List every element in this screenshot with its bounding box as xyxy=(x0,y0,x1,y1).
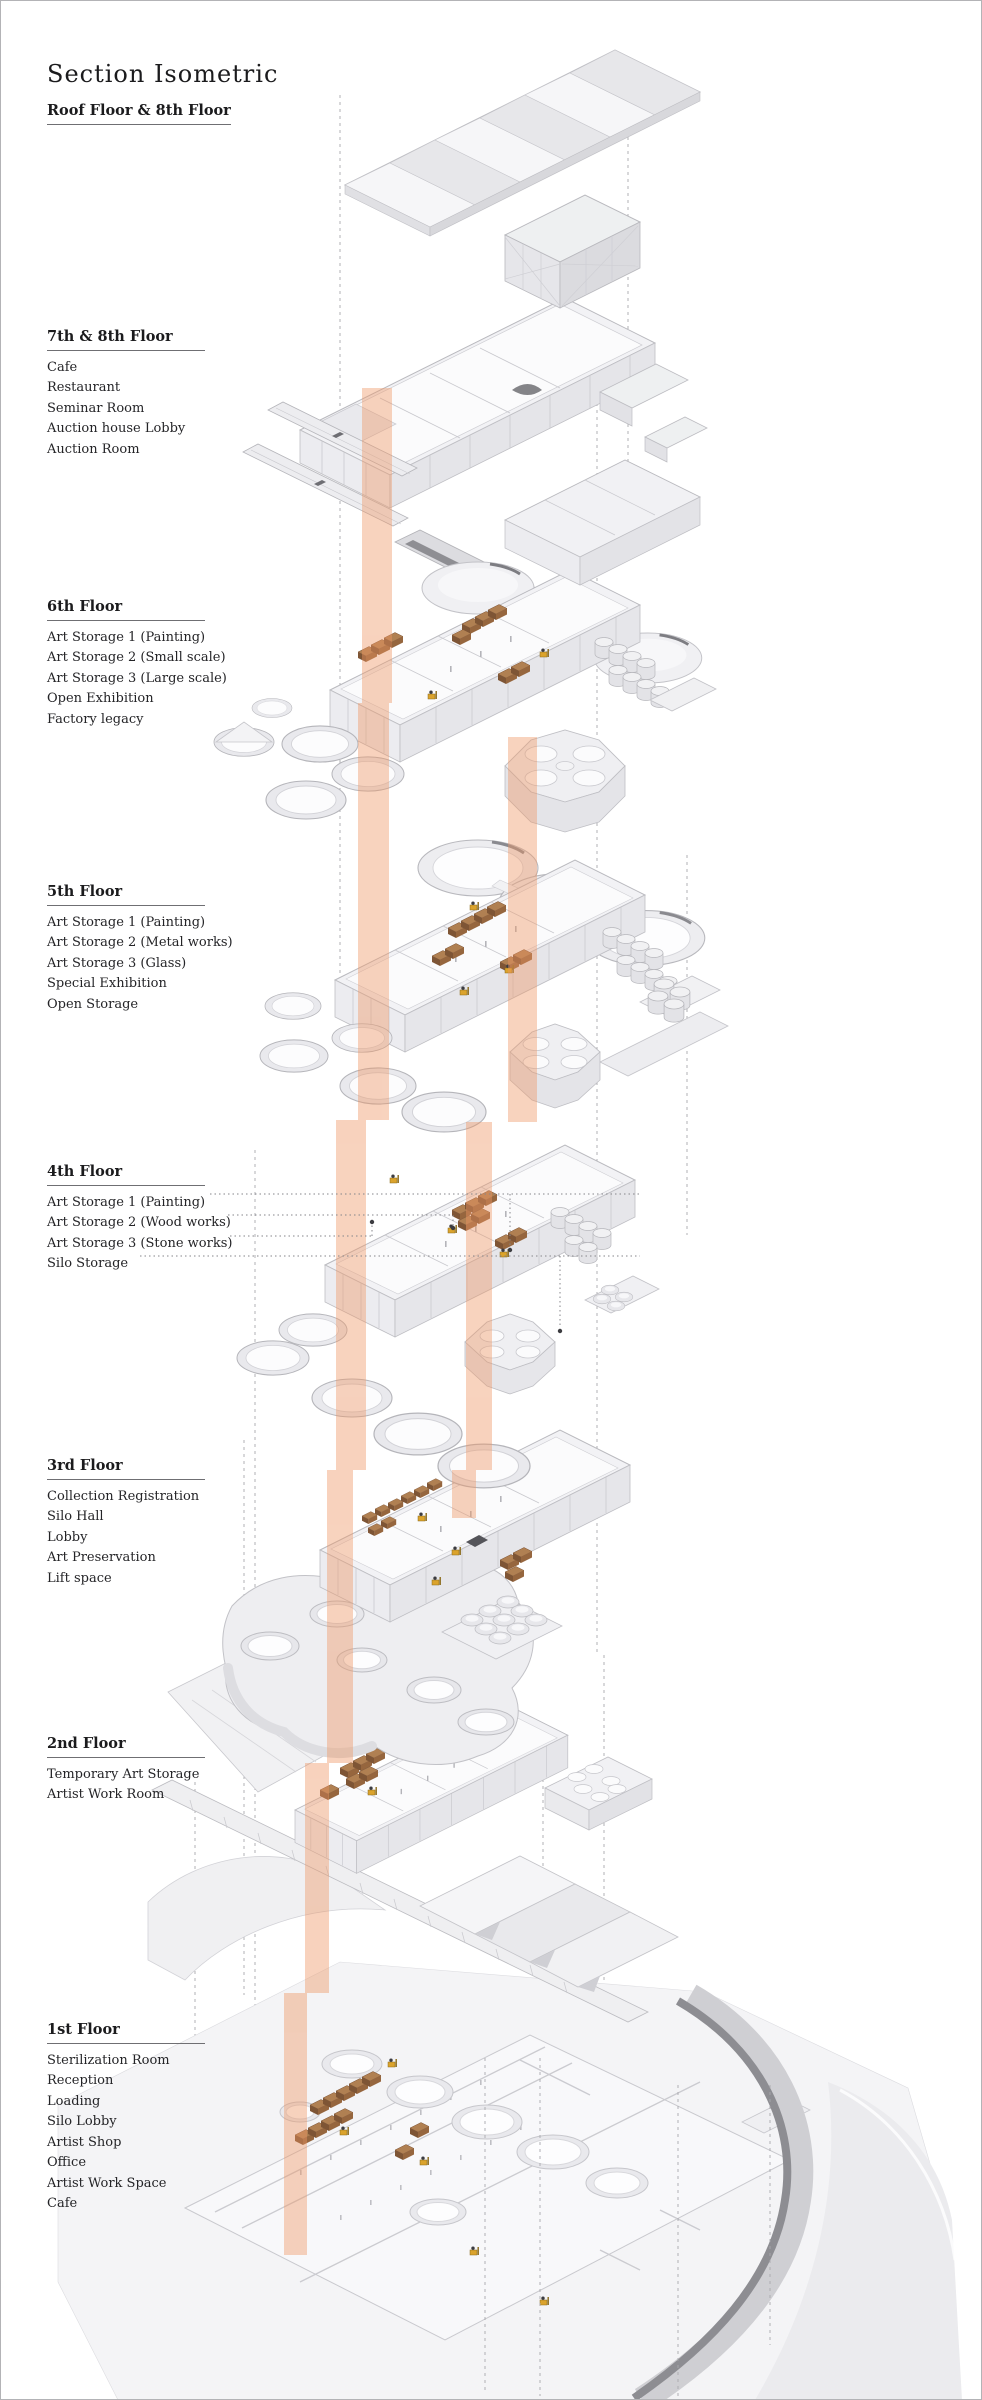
room-label: Sterilization Room xyxy=(47,2051,262,2072)
floor-heading: 1st Floor xyxy=(47,2022,205,2044)
floor-heading: 6th Floor xyxy=(47,599,205,621)
room-label: Loading xyxy=(47,2092,262,2113)
room-label: Auction Room xyxy=(47,440,262,461)
room-list: Art Storage 1 (Painting) Art Storage 2 (… xyxy=(47,628,262,731)
fifth-floor-drawing xyxy=(260,840,728,1132)
floor-heading: 7th & 8th Floor xyxy=(47,329,205,351)
floor-label-5: 5th Floor Art Storage 1 (Painting) Art S… xyxy=(47,881,262,1015)
room-label: Cafe xyxy=(47,2194,262,2215)
room-label: Artist Work Room xyxy=(47,1785,262,1806)
floor-label-3: 3rd Floor Collection Registration Silo H… xyxy=(47,1455,262,1589)
floor-label-roof: Roof Floor & 8th Floor xyxy=(47,100,262,125)
room-list: Cafe Restaurant Seminar Room Auction hou… xyxy=(47,358,262,461)
room-label: Restaurant xyxy=(47,378,262,399)
floor-label-4: 4th Floor Art Storage 1 (Painting) Art S… xyxy=(47,1161,262,1275)
room-list: Sterilization Room Reception Loading Sil… xyxy=(47,2051,262,2215)
room-label: Lobby xyxy=(47,1528,262,1549)
room-label: Office xyxy=(47,2153,262,2174)
room-label: Open Exhibition xyxy=(47,689,262,710)
room-label: Art Storage 2 (Wood works) xyxy=(47,1213,262,1234)
sixth-floor-drawing xyxy=(214,530,716,832)
floor-heading: 3rd Floor xyxy=(47,1458,205,1480)
room-label: Collection Registration xyxy=(47,1487,262,1508)
room-list: Collection Registration Silo Hall Lobby … xyxy=(47,1487,262,1590)
floor-label-6: 6th Floor Art Storage 1 (Painting) Art S… xyxy=(47,596,262,730)
floor-label-7-8: 7th & 8th Floor Cafe Restaurant Seminar … xyxy=(47,326,262,460)
room-label: Art Storage 2 (Metal works) xyxy=(47,933,262,954)
room-list: Art Storage 1 (Painting) Art Storage 2 (… xyxy=(47,913,262,1016)
room-label: Special Exhibition xyxy=(47,974,262,995)
room-label: Art Storage 3 (Large scale) xyxy=(47,669,262,690)
floor-heading: 4th Floor xyxy=(47,1164,205,1186)
floor-heading: Roof Floor & 8th Floor xyxy=(47,103,231,125)
floor-label-1: 1st Floor Sterilization Room Reception L… xyxy=(47,2019,262,2215)
room-label: Art Preservation xyxy=(47,1548,262,1569)
seventh-eighth-floor-drawing xyxy=(243,298,707,585)
room-label: Art Storage 1 (Painting) xyxy=(47,1193,262,1214)
room-label: Art Storage 2 (Small scale) xyxy=(47,648,262,669)
room-label: Auction house Lobby xyxy=(47,419,262,440)
room-label: Lift space xyxy=(47,1569,262,1590)
room-label: Art Storage 1 (Painting) xyxy=(47,913,262,934)
room-list: Art Storage 1 (Painting) Art Storage 2 (… xyxy=(47,1193,262,1275)
floor-heading: 5th Floor xyxy=(47,884,205,906)
roof-floor-drawing xyxy=(345,50,700,308)
room-label: Artist Shop xyxy=(47,2133,262,2154)
room-label: Silo Storage xyxy=(47,1254,262,1275)
room-label: Art Storage 3 (Stone works) xyxy=(47,1234,262,1255)
room-label: Temporary Art Storage xyxy=(47,1765,262,1786)
room-label: Open Storage xyxy=(47,995,262,1016)
room-list: Temporary Art Storage Artist Work Room xyxy=(47,1765,262,1806)
room-label: Artist Work Space xyxy=(47,2174,262,2195)
room-label: Silo Lobby xyxy=(47,2112,262,2133)
floor-heading: 2nd Floor xyxy=(47,1736,205,1758)
room-label: Cafe xyxy=(47,358,262,379)
room-label: Seminar Room xyxy=(47,399,262,420)
room-label: Art Storage 1 (Painting) xyxy=(47,628,262,649)
room-label: Art Storage 3 (Glass) xyxy=(47,954,262,975)
room-label: Reception xyxy=(47,2071,262,2092)
room-label: Silo Hall xyxy=(47,1507,262,1528)
floor-label-2: 2nd Floor Temporary Art Storage Artist W… xyxy=(47,1733,262,1806)
fourth-floor-drawing xyxy=(237,1145,659,1488)
room-label: Factory legacy xyxy=(47,710,262,731)
